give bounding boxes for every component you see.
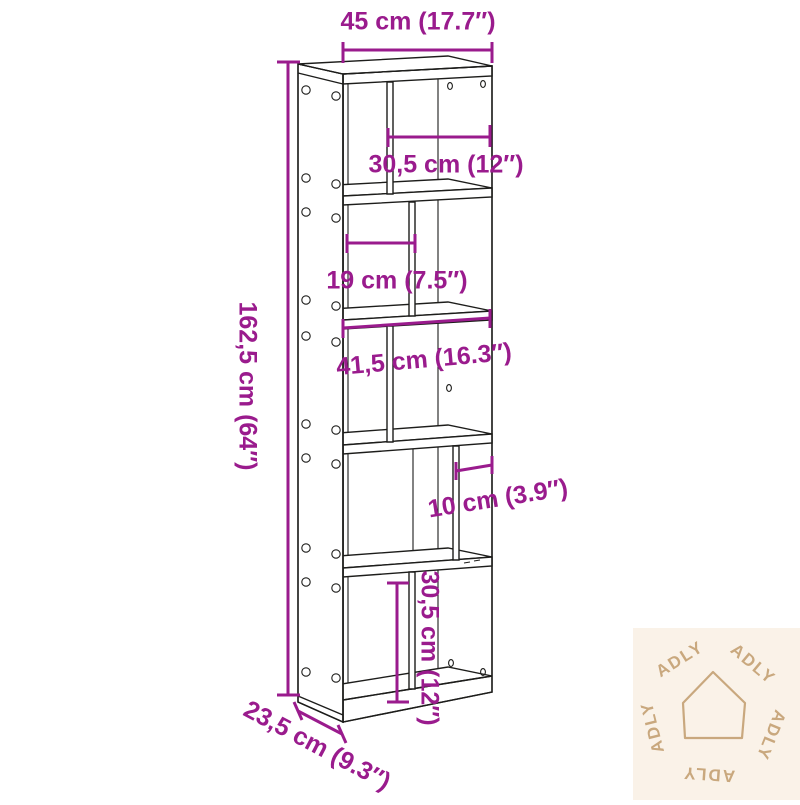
tier2-opening-dimension-label: 19 cm (7.5″) <box>326 269 467 294</box>
tier1-opening-dimension-label: 30,5 cm (12″) <box>368 153 523 178</box>
divider-tier2 <box>409 202 415 316</box>
side-panel <box>298 64 343 722</box>
product-dimension-diagram: { "diagram": { "product_name": "5-tier b… <box>0 0 800 800</box>
brand-word: ADLY <box>637 699 668 755</box>
brand-word: ADLY <box>652 637 707 681</box>
divider-tier3 <box>387 326 393 442</box>
divider-tier5 <box>409 572 415 689</box>
watermark-graphic: ADLY ADLY ADLY ADLY ADLY <box>633 628 800 800</box>
total-height-dimension-label: 162,5 cm (64″) <box>235 301 260 470</box>
brand-watermark: ADLY ADLY ADLY ADLY ADLY <box>633 628 800 800</box>
brand-ring: ADLY ADLY ADLY ADLY ADLY <box>637 637 790 786</box>
width-dimension-label: 45 cm (17.7″) <box>340 10 495 35</box>
tier5-height-dimension-label: 30,5 cm (12″) <box>417 570 442 725</box>
brand-word: ADLY <box>752 707 789 763</box>
house-icon <box>683 672 745 738</box>
brand-word: ADLY <box>727 640 780 688</box>
brand-word: ADLY <box>682 763 736 786</box>
